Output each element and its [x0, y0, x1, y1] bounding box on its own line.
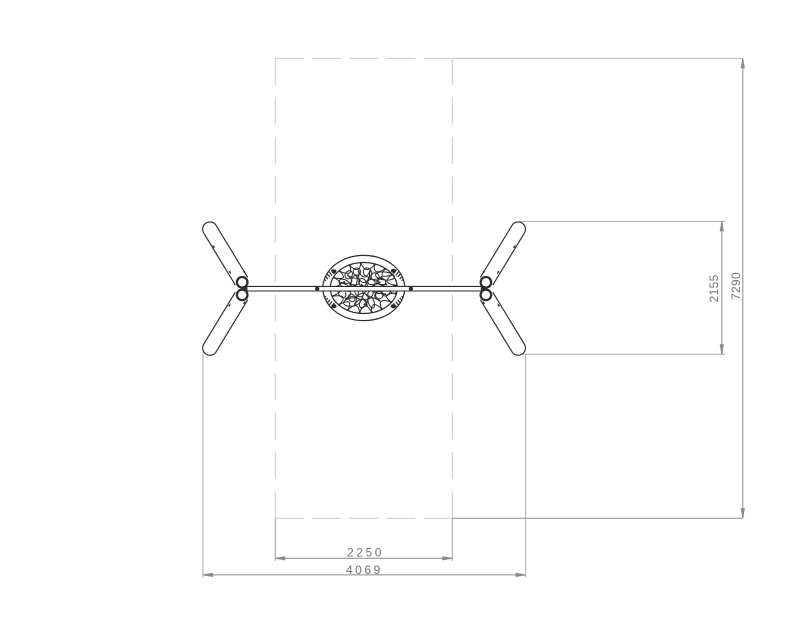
svg-text:7290: 7290 [729, 272, 743, 300]
svg-text:2155: 2155 [707, 274, 721, 302]
svg-text:2250: 2250 [347, 546, 384, 560]
svg-text:4069: 4069 [346, 563, 383, 577]
